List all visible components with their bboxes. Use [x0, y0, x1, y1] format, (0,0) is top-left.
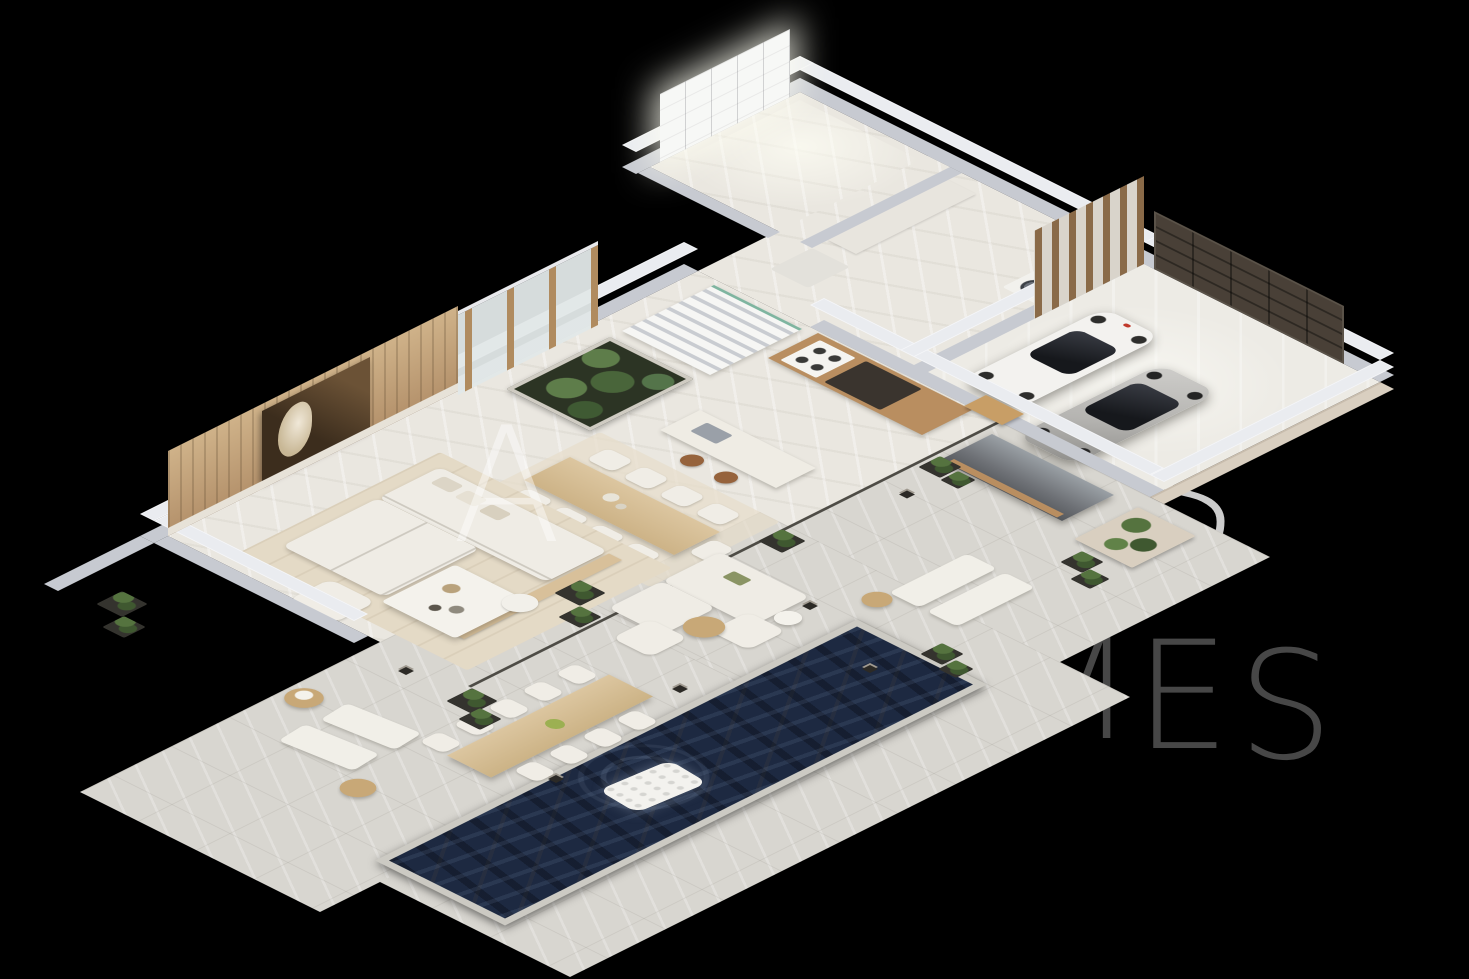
plant-pot: [102, 616, 146, 638]
plant-pot: [96, 591, 148, 617]
watermark-letter-a: A: [452, 406, 561, 566]
watermark-letter-s2: S: [1238, 632, 1333, 782]
wall-terrace-nook: [44, 536, 154, 591]
wall-art-figure: [278, 396, 312, 463]
car-white-taillight: [1122, 323, 1132, 328]
watermark-letter-e: E: [1135, 622, 1230, 772]
villa-floorplan-render: M S M E S: [0, 0, 1469, 979]
